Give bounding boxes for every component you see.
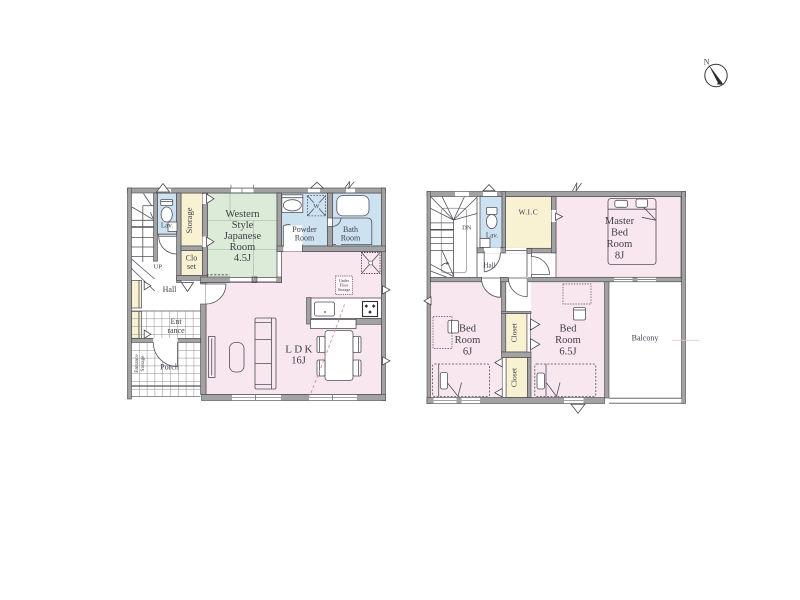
svg-text:6J: 6J xyxy=(463,347,472,358)
svg-text:Storage: Storage xyxy=(184,207,194,233)
svg-text:Western: Western xyxy=(225,209,260,220)
svg-text:W: W xyxy=(313,203,320,210)
svg-text:Bed: Bed xyxy=(560,324,578,335)
svg-text:Bed: Bed xyxy=(459,324,477,335)
svg-text:Master: Master xyxy=(605,216,635,227)
svg-text:Bed: Bed xyxy=(611,228,629,239)
svg-text:Hall: Hall xyxy=(483,262,495,270)
svg-text:Storage: Storage xyxy=(140,355,146,372)
svg-text:Room: Room xyxy=(607,239,633,250)
svg-text:Room: Room xyxy=(455,335,481,346)
svg-text:LDK: LDK xyxy=(285,344,315,356)
svg-text:16J: 16J xyxy=(291,356,306,367)
svg-text:6.5J: 6.5J xyxy=(559,347,576,358)
svg-text:Style: Style xyxy=(232,220,254,231)
svg-text:Room: Room xyxy=(295,234,315,243)
svg-text:rance: rance xyxy=(167,326,185,335)
svg-text:Room: Room xyxy=(230,242,256,253)
svg-text:DN: DN xyxy=(462,225,472,232)
svg-text:Storage: Storage xyxy=(338,287,350,292)
svg-text:Japanese: Japanese xyxy=(224,231,262,242)
svg-text:4.5J: 4.5J xyxy=(234,253,251,264)
svg-text:Closet: Closet xyxy=(510,322,519,342)
svg-text:Clo: Clo xyxy=(186,254,198,263)
svg-text:8J: 8J xyxy=(615,251,624,262)
svg-text:N: N xyxy=(704,58,710,67)
svg-text:Porch: Porch xyxy=(160,362,179,371)
svg-text:Lav.: Lav. xyxy=(486,232,498,240)
svg-text:UP: UP xyxy=(154,264,163,271)
svg-text:Closet: Closet xyxy=(510,367,519,387)
svg-text:set: set xyxy=(187,262,197,271)
svg-text:Lav.: Lav. xyxy=(161,222,173,230)
svg-text:Hall: Hall xyxy=(163,285,178,294)
svg-text:W.I.C: W.I.C xyxy=(518,208,538,217)
svg-text:Room: Room xyxy=(555,335,581,346)
svg-text:Room: Room xyxy=(341,234,361,243)
svg-text:Balcony: Balcony xyxy=(632,334,659,343)
svg-text:Ent: Ent xyxy=(170,317,182,326)
